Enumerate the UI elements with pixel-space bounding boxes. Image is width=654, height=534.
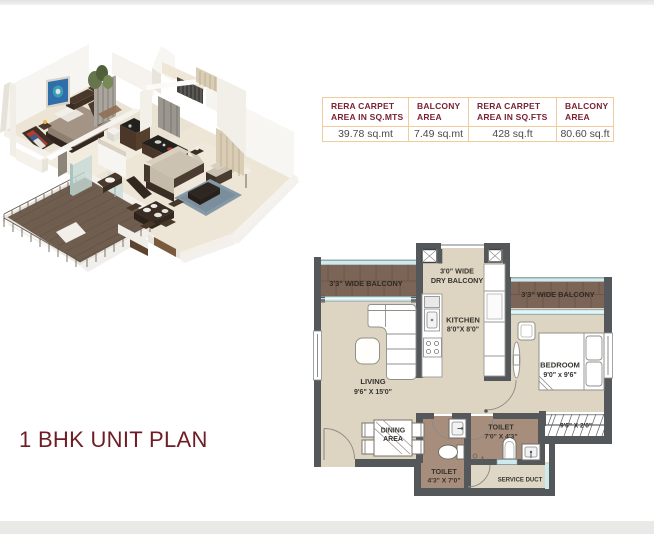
svg-text:TOILET: TOILET <box>431 467 457 476</box>
svg-text:AREA: AREA <box>383 436 403 443</box>
svg-text:3'0" WIDE: 3'0" WIDE <box>440 267 474 276</box>
svg-text:4'3" X 7'0": 4'3" X 7'0" <box>427 478 460 485</box>
svg-text:TOILET: TOILET <box>488 423 514 432</box>
svg-text:8'0"X 8'0": 8'0"X 8'0" <box>447 327 479 334</box>
svg-text:9'0" x 9'6": 9'0" x 9'6" <box>543 372 576 379</box>
svg-text:DINING: DINING <box>381 428 406 435</box>
svg-text:3'3" WIDE BALCONY: 3'3" WIDE BALCONY <box>329 279 402 288</box>
svg-text:KITCHEN: KITCHEN <box>446 316 480 325</box>
svg-text:DRY BALCONY: DRY BALCONY <box>431 276 484 285</box>
svg-text:9'6" X 15'0": 9'6" X 15'0" <box>354 389 392 396</box>
svg-text:BEDROOM: BEDROOM <box>540 361 580 370</box>
svg-text:SERVICE DUCT: SERVICE DUCT <box>498 478 543 484</box>
svg-text:9'6" X 2'0": 9'6" X 2'0" <box>560 423 592 430</box>
svg-text:3'3" WIDE BALCONY: 3'3" WIDE BALCONY <box>521 290 594 299</box>
svg-text:LIVING: LIVING <box>360 377 385 386</box>
svg-text:7'0" X 4'3": 7'0" X 4'3" <box>484 434 517 441</box>
